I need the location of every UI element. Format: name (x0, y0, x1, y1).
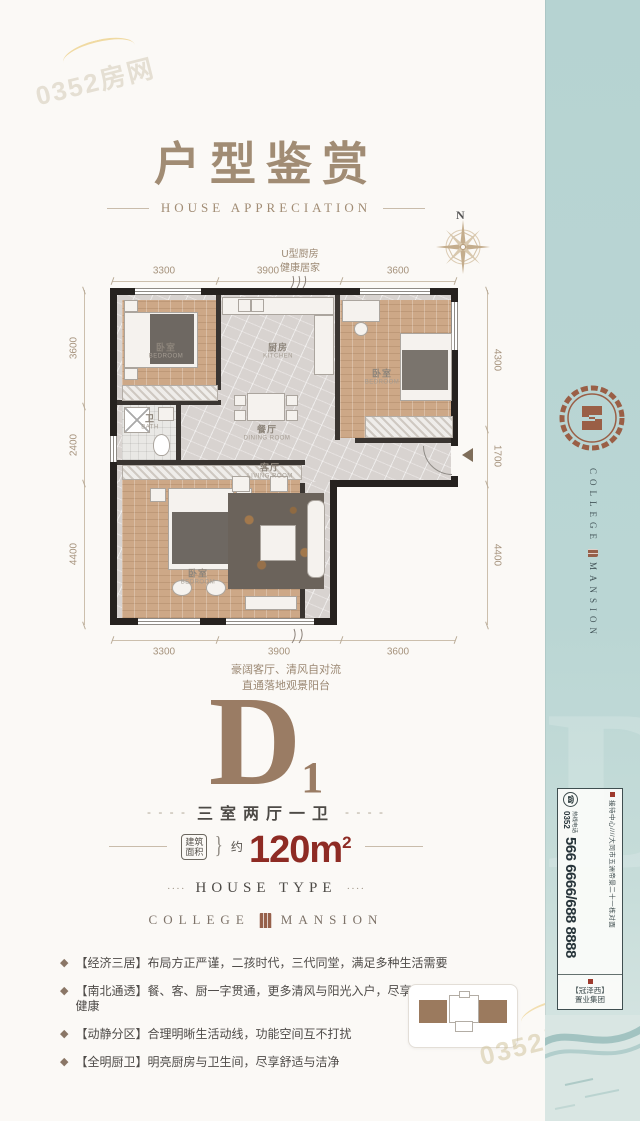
unit-layout-row: - - - - 三室两厅一卫 - - - - (0, 800, 532, 824)
compass-rose-icon (434, 218, 492, 276)
inner-wall (355, 438, 451, 443)
room-label-cn: 卧室 (149, 341, 184, 354)
key-plan-unit-left (419, 1000, 447, 1023)
dimension-line-left (84, 290, 85, 625)
room-label-en: BEDROOM (181, 580, 216, 586)
unit-letter-number: 1 (301, 753, 323, 802)
page-title: 户型鉴赏 (0, 128, 532, 194)
room-label-cn: 厨房 (263, 341, 293, 354)
area-number: 120m (249, 829, 342, 871)
feature-item: ◆ 【经济三居】布局方正严谨，二孩时代，三代同堂，满足多种生活需要 (60, 956, 450, 971)
window (110, 436, 117, 462)
toilet (153, 434, 170, 456)
room-label-en: BATH (141, 425, 159, 431)
phone-line: ☎ 热线电话 0352 566 6666/688 8888 (562, 792, 579, 962)
room-label-en: DINING ROOM (244, 436, 291, 442)
bed-duvet (402, 350, 448, 390)
area-label-line1: 建筑 (185, 837, 203, 847)
house-type-label: HOUSE TYPE (196, 880, 337, 897)
company-line2: 置业集团 (558, 995, 622, 1004)
address-text: 接待中心////大同市五洲帝景二十一栋对面 (608, 800, 618, 928)
dim-right-1: 4300 (492, 349, 503, 371)
diamond-bullet-icon: ◆ (60, 984, 68, 999)
page-subtitle-row: HOUSE APPRECIATION (0, 200, 532, 216)
page-subtitle: HOUSE APPRECIATION (161, 200, 371, 216)
dots-right: ···· (346, 883, 365, 895)
brand-college: COLLEGE (149, 912, 250, 928)
room-label-cn: 餐厅 (244, 423, 291, 436)
address-line: 接待中心////大同市五洲帝景二十一栋对面 (608, 792, 618, 962)
feature-text: 【动静分区】合理明晰生活动线，功能空间互不打扰 (75, 1027, 351, 1042)
house-type-row: ···· HOUSE TYPE ···· (0, 880, 532, 897)
dashes-left: - - - - (147, 805, 187, 819)
airflow-marks (288, 628, 310, 644)
desk (342, 300, 380, 322)
wall (330, 480, 458, 487)
dining-chair (286, 395, 298, 406)
room-label-en: BEDROOM (149, 354, 184, 360)
phone-icon: ☎ (563, 792, 578, 807)
window-balcony-door (226, 618, 314, 625)
room-label-cn: 卫 (141, 412, 159, 425)
inner-wall (176, 405, 181, 460)
tv-cabinet (245, 596, 297, 610)
hotline-rotated-content: 接待中心////大同市五洲帝景二十一栋对面 ☎ 热线电话 0352 566 66… (562, 792, 618, 962)
floor-plan: 卧室 BEDROOM 厨房 KITCHEN 卧室 BEDROOM 餐厅 DINI… (110, 288, 458, 625)
wardrobe (365, 416, 453, 438)
diamond-bullet-icon: ◆ (60, 1027, 68, 1042)
room-label-en: BEDROOM (365, 380, 400, 386)
kitchen-sink (238, 299, 251, 312)
dim-right-3: 4400 (492, 544, 503, 566)
brand-emblem-icon (588, 549, 598, 557)
key-plan-unit-right (479, 1000, 507, 1023)
dim-top-3: 3600 (387, 266, 409, 277)
unit-area-row: 建筑 面积 } 约 120m2 (0, 826, 532, 867)
area-label-line2: 面积 (185, 847, 203, 857)
dimension-line-right (487, 290, 488, 625)
feature-item: ◆ 【动静分区】合理明晰生活动线，功能空间互不打扰 (60, 1027, 450, 1042)
kitchen-note-line1: U型厨房 (250, 248, 350, 262)
dim-right-2: 1700 (492, 445, 503, 467)
inner-wall (216, 295, 221, 390)
dining-chair (286, 410, 298, 421)
area-superscript: 2 (342, 833, 350, 852)
dim-left-1: 3600 (69, 337, 80, 359)
brand-emblem-icon (259, 913, 272, 928)
room-label-cn: 卧室 (181, 567, 216, 580)
brand-college: COLLEGE (588, 468, 598, 544)
dining-chair (234, 395, 246, 406)
dim-bottom-1: 3300 (153, 647, 175, 658)
diamond-bullet-icon: ◆ (60, 956, 68, 971)
room-label-en: KITCHEN (263, 354, 293, 360)
brand-mansion: MANSION (588, 562, 598, 639)
dashes-right: - - - - (345, 805, 385, 819)
unit-letter: D1 (0, 686, 532, 803)
divider (107, 208, 149, 209)
dim-tick (485, 287, 489, 295)
dim-bottom-3: 3600 (387, 647, 409, 658)
dim-bottom-2: 3900 (268, 647, 290, 658)
nightstand (124, 300, 138, 312)
window (360, 288, 430, 295)
window (135, 288, 201, 295)
room-label-en: LIVING ROOM (247, 474, 293, 480)
bathroom-sink (158, 407, 174, 421)
phone-numbers: 566 6666/688 8888 (562, 837, 579, 958)
divider (365, 846, 423, 847)
dim-top-2: 3900 (257, 266, 279, 277)
window (138, 618, 200, 625)
room-label-dining: 餐厅 DINING ROOM (244, 423, 291, 442)
kitchen-stove-counter (314, 315, 334, 375)
entry-opening (451, 446, 458, 476)
brand-row: COLLEGE MANSION (0, 912, 532, 928)
room-label-bedroom-topleft: 卧室 BEDROOM (149, 341, 184, 360)
area-label-box: 建筑 面积 (181, 834, 207, 860)
dim-left-2: 2400 (69, 434, 80, 456)
red-square-icon (611, 792, 616, 797)
flyer-page: 0352房网 户型鉴赏 HOUSE APPRECIATION N U型厨房 健康… (0, 0, 640, 1121)
key-plan-unit-middle (449, 995, 479, 1023)
key-plan-notch (455, 1021, 473, 1032)
nightstand (150, 488, 166, 502)
unit-layout: 三室两厅一卫 (197, 800, 335, 824)
kitchen-sink (251, 299, 264, 312)
feature-text: 【经济三居】布局方正严谨，二孩时代，三代同堂，满足多种生活需要 (75, 956, 447, 971)
unit-letter-d: D (209, 670, 301, 812)
dining-chair (234, 410, 246, 421)
dim-left-3: 4400 (69, 543, 80, 565)
hotline-box: 接待中心////大同市五洲帝景二十一栋对面 ☎ 热线电话 0352 566 66… (557, 788, 623, 1010)
divider (383, 208, 425, 209)
feature-text: 【全明厨卫】明亮厨房与卫生间，尽享舒适与洁净 (75, 1055, 339, 1070)
key-plan-notch (459, 991, 470, 998)
diamond-bullet-icon: ◆ (60, 1055, 68, 1070)
room-label-bath: 卫 BATH (141, 412, 159, 431)
feature-item: ◆ 【南北通透】餐、客、厨一字贯通，更多清风与阳光入户，尽享舒适与健康 (60, 984, 450, 1014)
entry-arrow-icon (462, 448, 473, 462)
area-code: 0352 (564, 811, 571, 833)
area-value: 120m2 (249, 826, 351, 867)
sidebar-vertical-brand: COLLEGE MANSION (588, 468, 598, 646)
dining-table (247, 393, 285, 421)
area-approx: 约 (231, 838, 243, 855)
wave-artwork (545, 1015, 640, 1121)
room-label-kitchen: 厨房 KITCHEN (263, 341, 293, 360)
dots-left: ···· (167, 883, 186, 895)
bed-duvet (172, 512, 228, 564)
nightstand (124, 368, 138, 380)
feature-list: ◆ 【经济三居】布局方正严谨，二孩时代，三代同堂，满足多种生活需要 ◆ 【南北通… (60, 956, 450, 1070)
wardrobe (122, 385, 218, 401)
hotline-label: 热线电话 (571, 811, 578, 833)
brand-mansion: MANSION (281, 912, 384, 928)
inner-wall (335, 295, 340, 440)
feature-item: ◆ 【全明厨卫】明亮厨房与卫生间，尽享舒适与洁净 (60, 1055, 450, 1070)
brand-sidebar: COLLEGE MANSION D 接待中心////大同市五洲帝景二十一栋对面 … (545, 0, 640, 1121)
room-label-cn: 卧室 (365, 367, 400, 380)
room-label-bedroom-topright: 卧室 BEDROOM (365, 367, 400, 386)
sofa (307, 500, 325, 578)
window (451, 302, 458, 350)
feature-text: 【南北通透】餐、客、厨一字贯通，更多清风与阳光入户，尽享舒适与健康 (75, 984, 450, 1014)
room-label-bedroom-bottomleft: 卧室 BEDROOM (181, 567, 216, 586)
hotline-label-block: 热线电话 0352 (564, 811, 578, 833)
room-label-living: 客厅 LIVING ROOM (247, 461, 293, 480)
area-brace: } (215, 833, 223, 860)
company-line1: 【冠泽西】 (558, 986, 622, 995)
company-block: 【冠泽西】 置业集团 (558, 974, 622, 1009)
wall (330, 480, 337, 625)
dim-top-1: 3300 (153, 266, 175, 277)
red-square-icon (588, 979, 593, 984)
room-label-cn: 客厅 (247, 461, 293, 474)
airflow-marks (288, 275, 310, 289)
desk-chair (354, 322, 368, 336)
dim-tick (454, 277, 458, 285)
dim-tick (454, 636, 458, 644)
divider (109, 846, 167, 847)
coffee-table (260, 525, 296, 561)
dimension-line-top (112, 281, 455, 282)
dim-tick (82, 287, 86, 295)
brand-seal-icon (559, 385, 625, 451)
dimension-line-bottom (112, 640, 455, 641)
